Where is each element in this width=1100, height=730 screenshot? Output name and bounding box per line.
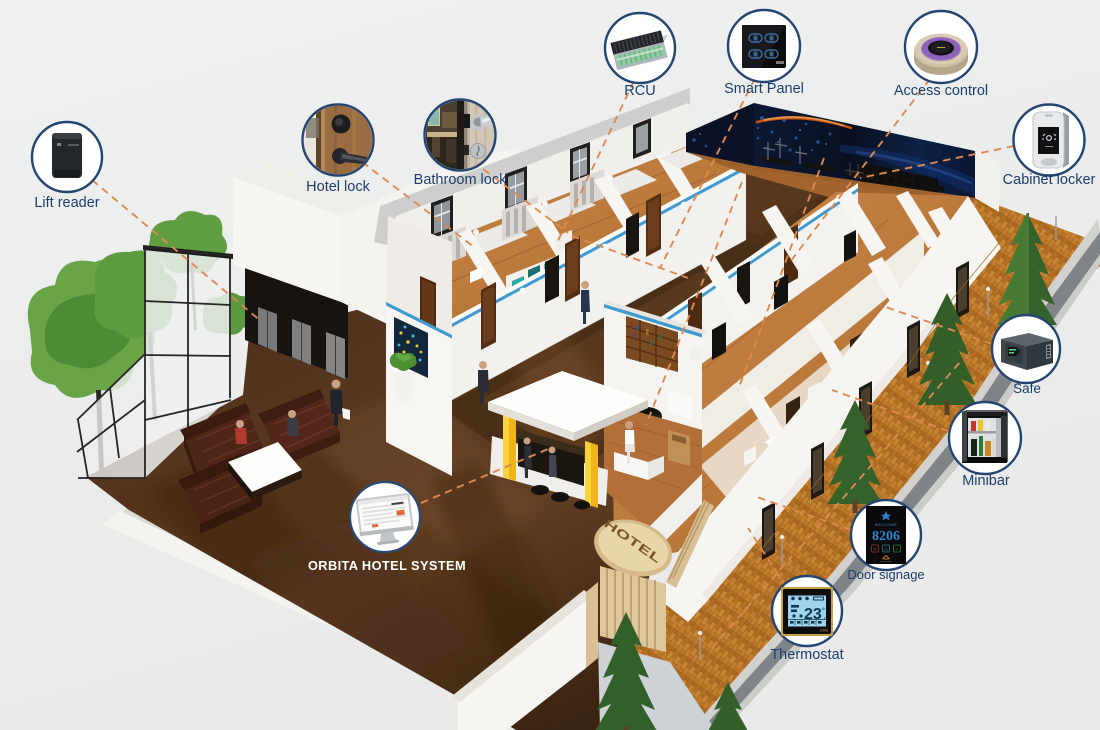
svg-text:Hotel lock: Hotel lock xyxy=(306,179,370,195)
svg-text:✕: ✕ xyxy=(873,547,877,553)
svg-text:Cabinet locker: Cabinet locker xyxy=(1003,172,1096,188)
svg-text:Lift reader: Lift reader xyxy=(34,195,99,211)
svg-text:Safe: Safe xyxy=(1013,381,1041,396)
svg-text:Access control: Access control xyxy=(894,83,988,99)
svg-text:°: ° xyxy=(822,607,825,615)
svg-text:Smart Panel: Smart Panel xyxy=(724,81,804,97)
svg-text:♺: ♺ xyxy=(884,547,889,553)
svg-text:23: 23 xyxy=(804,606,822,623)
svg-text:orbita: orbita xyxy=(820,629,829,633)
svg-text:RCU: RCU xyxy=(624,83,655,99)
svg-text:Bathroom lock: Bathroom lock xyxy=(414,172,507,188)
svg-text:Minibar: Minibar xyxy=(962,473,1010,489)
svg-text:Thermostat: Thermostat xyxy=(770,647,843,663)
svg-text:8206: 8206 xyxy=(872,529,900,544)
svg-text:ORBITA HOTEL SYSTEM: ORBITA HOTEL SYSTEM xyxy=(308,558,466,573)
svg-text:WELCOME: WELCOME xyxy=(875,523,897,527)
svg-text:✓: ✓ xyxy=(895,547,899,553)
svg-text:Door signage: Door signage xyxy=(847,567,924,582)
